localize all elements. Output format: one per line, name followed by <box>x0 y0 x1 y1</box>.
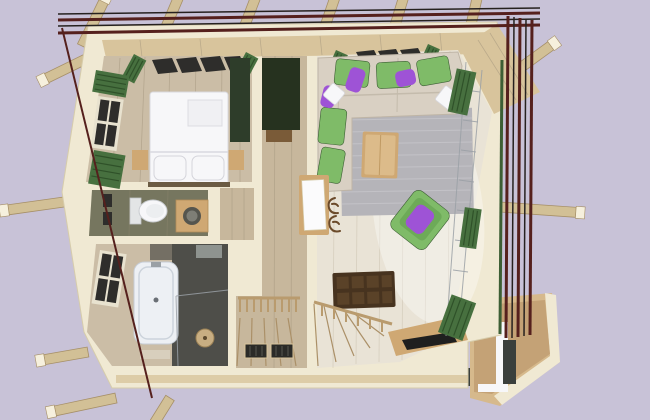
bathroom <box>87 244 228 366</box>
hall-wardrobe <box>262 58 300 130</box>
rafter-icon <box>148 395 174 420</box>
tub-drain <box>154 298 159 303</box>
bedroom <box>86 52 258 189</box>
headboard <box>148 182 230 187</box>
pillow-right <box>192 156 224 180</box>
nightstand-left <box>132 150 148 170</box>
wardrobe-rail <box>266 130 292 142</box>
rafter-icon <box>0 196 65 217</box>
coffee-table <box>361 131 399 178</box>
grey-rug <box>340 108 474 216</box>
folded-blanket <box>188 100 222 126</box>
rafter-icon <box>35 346 89 367</box>
pillow-left <box>154 156 186 180</box>
bottom-ledge <box>116 375 468 383</box>
bedroom-cabinet <box>230 58 250 142</box>
green-cushion <box>416 55 452 86</box>
toilet <box>130 198 167 224</box>
balcony-column <box>503 340 516 384</box>
green-cushion <box>318 107 348 146</box>
rafter-icon <box>45 392 117 418</box>
bathroom-sink <box>196 245 222 258</box>
floor-plan-render <box>0 0 650 420</box>
bathtub <box>134 262 178 344</box>
floor-plan-svg <box>0 0 650 420</box>
entry-door <box>299 175 329 235</box>
vanity-sink <box>176 200 208 232</box>
dark-chest <box>332 271 395 309</box>
tub-faucet <box>151 262 161 267</box>
living-room <box>299 44 497 368</box>
bath-mat <box>140 350 170 359</box>
closet-niche <box>220 188 254 240</box>
shower-dark-tile <box>172 244 228 366</box>
nightstand-right <box>228 150 244 170</box>
